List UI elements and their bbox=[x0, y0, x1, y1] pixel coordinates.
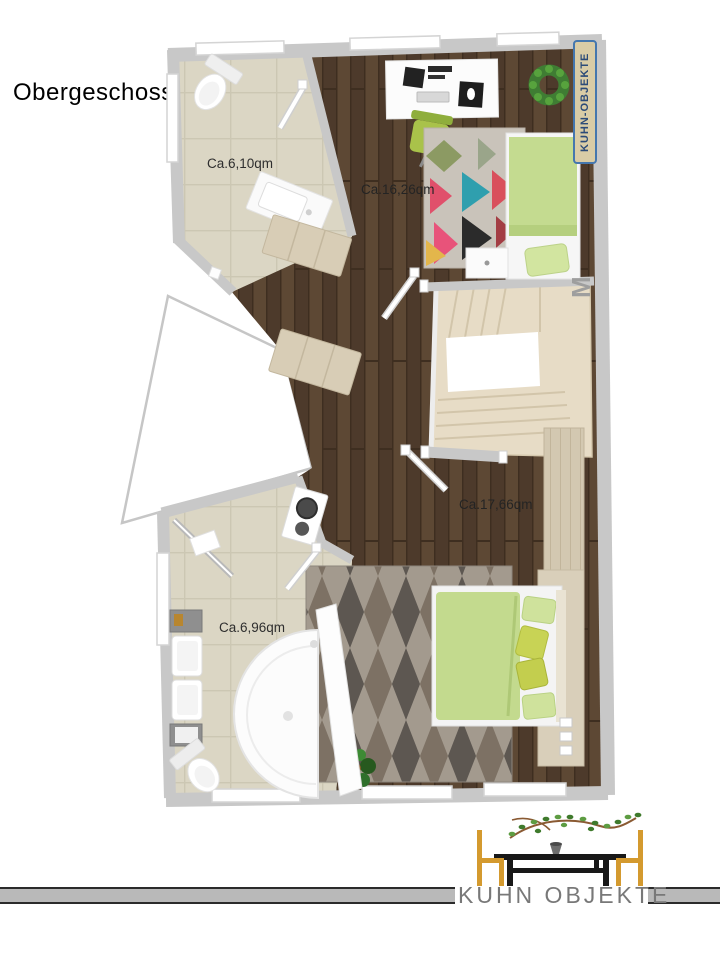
single-bed bbox=[506, 133, 580, 279]
brand-wordmark: KUHN OBJEKTE bbox=[458, 882, 650, 909]
area-label-bathroom-top: Ca.6,10qm bbox=[207, 156, 273, 171]
floorplan-page: Obergeschoss: bbox=[0, 0, 720, 960]
light-switches bbox=[560, 718, 572, 755]
nightstand-knob bbox=[485, 261, 490, 266]
double-bed bbox=[432, 586, 566, 726]
desk bbox=[386, 59, 499, 119]
watermark-partial-text: M bbox=[566, 270, 610, 298]
watermark-badge: KUHN-OBJEKTE bbox=[573, 40, 597, 164]
area-label-bathroom-bottom: Ca.6,96qm bbox=[219, 620, 285, 635]
area-label-bedroom-top: Ca.16,26qm bbox=[361, 182, 435, 197]
logo-branch bbox=[509, 813, 642, 854]
logo-bar-left bbox=[0, 887, 455, 904]
brand-logo-art bbox=[450, 806, 670, 888]
area-label-bedroom-bottom: Ca.17,66qm bbox=[459, 497, 533, 512]
wardrobe bbox=[544, 428, 584, 570]
wreath-decor bbox=[529, 65, 569, 105]
